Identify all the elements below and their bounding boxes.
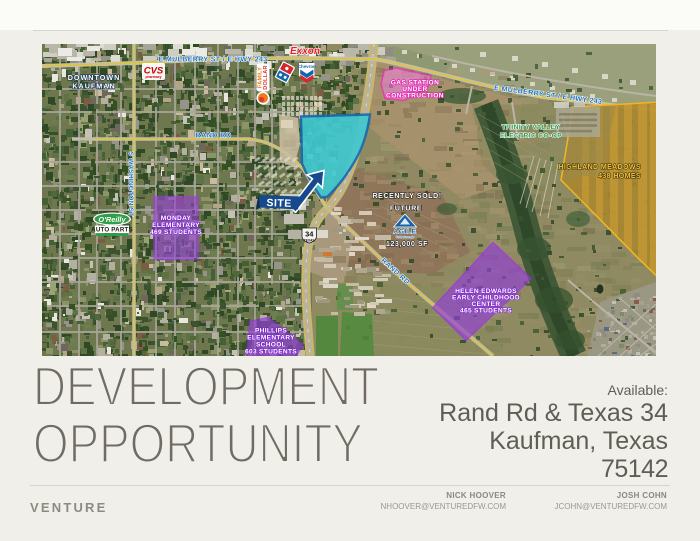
- svg-text:TEXAS: TEXAS: [304, 238, 315, 242]
- svg-text:123,000 SF: 123,000 SF: [386, 239, 428, 248]
- svg-text:S WASHINGTON ST: S WASHINGTON ST: [127, 152, 134, 217]
- svg-text:DOLLAR: DOLLAR: [263, 65, 269, 90]
- svg-text:Cold Storage: Cold Storage: [396, 235, 415, 239]
- svg-text:603 STUDENTS: 603 STUDENTS: [245, 349, 297, 356]
- svg-text:O'Reilly: O'Reilly: [98, 215, 126, 224]
- svg-text:CONSTRUCTION: CONSTRUCTION: [386, 93, 444, 100]
- svg-text:AUTO PARTS: AUTO PARTS: [91, 227, 133, 234]
- svg-text:MONDAY: MONDAY: [161, 215, 192, 222]
- svg-text:TRINITY VALLEY: TRINITY VALLEY: [502, 124, 561, 131]
- svg-text:SITE: SITE: [266, 197, 292, 210]
- svg-text:RAND RD: RAND RD: [196, 133, 232, 140]
- svg-text:E MULBERRY ST / E HWY 243: E MULBERRY ST / E HWY 243: [158, 57, 267, 64]
- svg-text:ELEMENTARY: ELEMENTARY: [152, 222, 200, 229]
- svg-text:ELEMENTARY: ELEMENTARY: [247, 335, 295, 342]
- svg-text:FUTURE: FUTURE: [390, 204, 422, 213]
- svg-text:Exxon: Exxon: [290, 46, 320, 57]
- svg-text:438 HOMES: 438 HOMES: [598, 173, 641, 180]
- svg-text:Chevron: Chevron: [298, 64, 316, 69]
- svg-text:469 STUDENTS: 469 STUDENTS: [150, 229, 202, 236]
- svg-text:PHILLIPS: PHILLIPS: [255, 328, 287, 335]
- svg-text:465 STUDENTS: 465 STUDENTS: [460, 308, 512, 315]
- svg-text:RECENTLY SOLD!: RECENTLY SOLD!: [372, 191, 441, 200]
- svg-text:KAUFMAN: KAUFMAN: [72, 81, 115, 90]
- svg-text:pharmacy: pharmacy: [145, 75, 161, 79]
- svg-text:SCHOOL: SCHOOL: [256, 342, 286, 349]
- svg-text:ELECTRIC CO-OP: ELECTRIC CO-OP: [500, 133, 562, 140]
- svg-text:HIGHLAND MEADOWS: HIGHLAND MEADOWS: [558, 164, 641, 171]
- svg-text:34: 34: [305, 230, 314, 239]
